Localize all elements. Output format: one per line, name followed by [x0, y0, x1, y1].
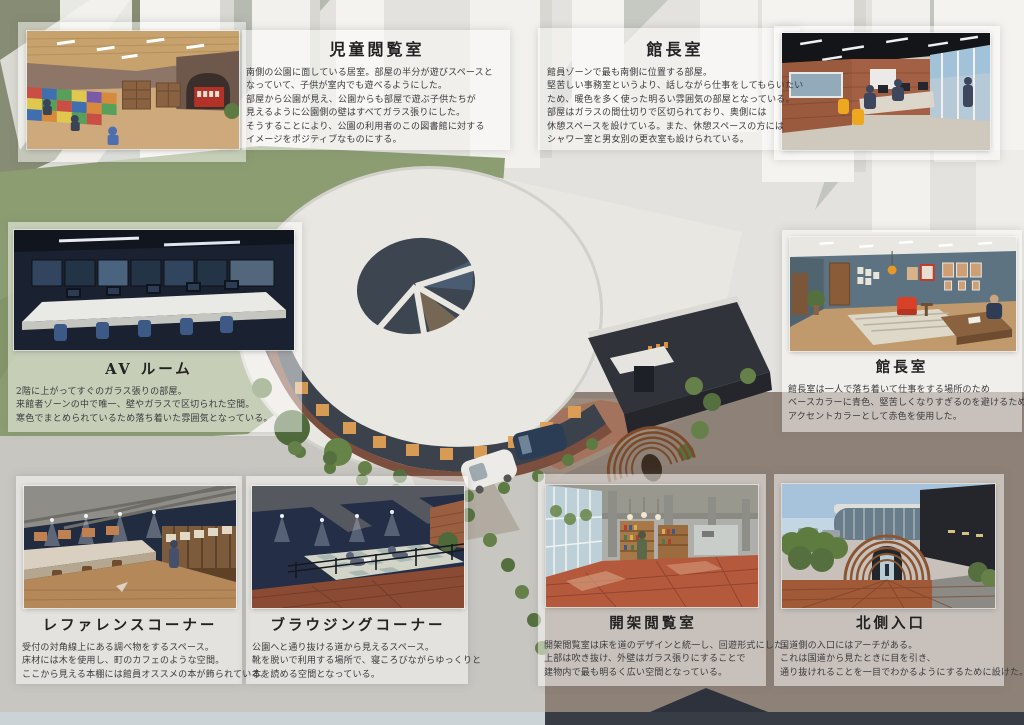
section-director-room: 館長室 館長室は一人で落ち着いて仕事をする場所のため ベースカラーに青色、堅苦し… [788, 356, 1016, 424]
text-line: 開架閲覧室は床を道のデザインと統一し、回遊形式にした。 [544, 640, 762, 653]
text-line: 本を読める空間となっている。 [252, 669, 464, 682]
text-line: 堅苦しい事務室というより、話しながら仕事をしてもらいたい [547, 80, 803, 93]
text-line: 館長室は一人で落ち着いて仕事をする場所のため [788, 384, 1016, 397]
children-reading-room-photo [27, 31, 239, 149]
section-open-stack: 開架閲覧室 開架閲覧室は床を道のデザインと統一し、回遊形式にした。 上部は吹き抜… [544, 612, 762, 680]
text-line: 寒色でまとめられているため落ち着いた雰囲気となっている。 [16, 413, 282, 426]
north-entrance-photo [782, 484, 995, 608]
text-line: 2階に上がってすぐのガラス張りの部屋。 [16, 386, 282, 399]
section-browsing-corner: ブラウジングコーナー 公園へと通り抜ける道から見えるスペース。 靴を脱いで利用す… [252, 614, 464, 682]
text-line: 建物内で最も明るく広い空間となっている。 [544, 667, 762, 680]
text-line: なっていて、子供が室内でも遊べるようにした。 [246, 80, 508, 93]
section-title-children-reading: 児童閲覧室 [246, 36, 508, 60]
text-line: 見えるように公園側の壁はすべてガラス張りにした。 [246, 107, 508, 120]
text-line: 来館者ゾーンの中で唯一、壁やガラスで区切られた空間。 [16, 399, 282, 412]
text-line: 国道側の入口にはアーチがある。 [780, 640, 1002, 653]
section-children-reading: 児童閲覧室 南側の公園に面している居室。部屋の半分が遊びスペースと なっていて、… [246, 36, 508, 147]
text-line: そうすることにより、公園の利用者のこの図書館に対する [246, 121, 508, 134]
section-av-room: AV ルーム 2階に上がってすぐのガラス張りの部屋。 来館者ゾーンの中で唯一、壁… [16, 358, 282, 426]
section-title-director-room: 館長室 [788, 356, 1016, 377]
text-line: これは国道から見たときに目を引き、 [780, 653, 1002, 666]
text-line: ベースカラーに青色、堅苦しくなりすぎるのを避けるため、 [788, 397, 1016, 410]
section-north-entrance: 北側入口 国道側の入口にはアーチがある。 これは国道から見たときに目を引き、 通… [780, 612, 1002, 680]
section-reference-corner: レファレンスコーナー 受付の対角線上にある調べ物をするスペース。 床材には木を使… [22, 614, 238, 682]
open-stack-room-photo [546, 485, 758, 607]
text-line: 床材には木を使用し、町のカフェのような空間。 [22, 655, 238, 668]
section-title-reference-corner: レファレンスコーナー [22, 614, 238, 635]
section-title-office: 館長室 [547, 36, 803, 60]
text-line: ここから見える本棚には館員オススメの本が飾られている。 [22, 669, 238, 682]
text-line: 部屋から公園が見え、公園からも部屋で遊ぶ子供たちが [246, 94, 508, 107]
director-room-photo [790, 237, 1016, 351]
section-title-north-entrance: 北側入口 [780, 612, 1002, 633]
section-office: 館長室 館員ゾーンで最も南側に位置する部屋。 堅苦しい事務室というより、話しなが… [547, 36, 803, 147]
av-room-photo [14, 230, 294, 350]
text-line: 靴を脱いで利用する場所で、寝ころびながらゆっくりと [252, 655, 464, 668]
text-line: 受付の対角線上にある調べ物をするスペース。 [22, 642, 238, 655]
section-title-open-stack: 開架閲覧室 [544, 612, 762, 633]
section-title-av-room: AV ルーム [16, 358, 282, 379]
text-line: イメージをポジティブなものにする。 [246, 134, 508, 147]
text-line: ため、暖色を多く使った明るい雰囲気の部屋となっている。 [547, 94, 803, 107]
text-line: 公園へと通り抜ける道から見えるスペース。 [252, 642, 464, 655]
text-line: シャワー室と男女別の更衣室も設けられている。 [547, 134, 803, 147]
office-room-photo [782, 33, 990, 150]
text-line: アクセントカラーとして赤色を使用した。 [788, 411, 1016, 424]
section-title-browsing-corner: ブラウジングコーナー [252, 614, 464, 635]
text-line: 南側の公園に面している居室。部屋の半分が遊びスペースと [246, 67, 508, 80]
text-line: 館員ゾーンで最も南側に位置する部屋。 [547, 67, 803, 80]
reference-corner-photo [24, 486, 236, 608]
text-line: 上部は吹き抜け、外壁はガラス張りにすることで [544, 653, 762, 666]
text-line: 休憩スペースを設けている。また、休憩スペースの方には [547, 121, 803, 134]
browsing-corner-photo [252, 486, 464, 608]
text-line: 部屋はガラスの間仕切りで区切られており、奥側には [547, 107, 803, 120]
text-line: 通り抜けれることを一目でわかるようにするために設けた。 [780, 667, 1002, 680]
